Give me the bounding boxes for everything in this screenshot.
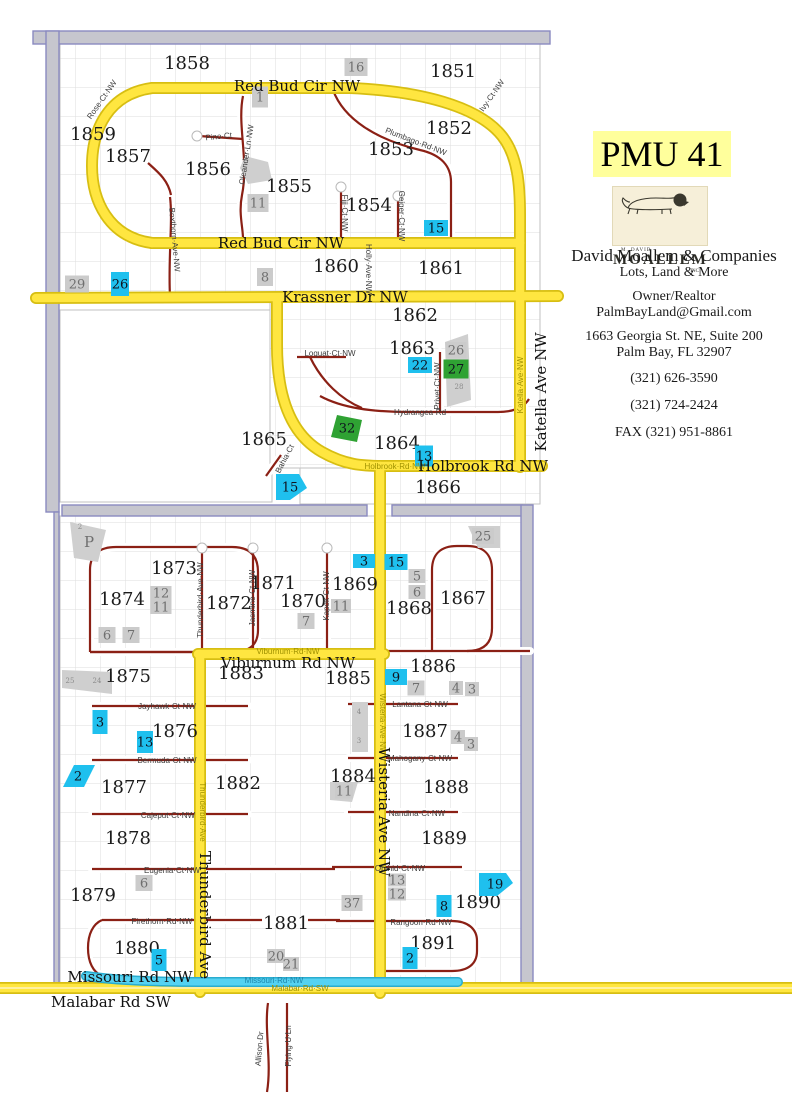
lot-marker-green: 27 — [444, 360, 469, 379]
block-label: 1857 — [105, 146, 151, 167]
block-label: 1858 — [164, 53, 210, 74]
street-name-label: Firethorn·Rd·NW — [132, 917, 193, 926]
marker-value: 11 — [250, 197, 267, 212]
phone-number-2: (321) 724-2424 — [544, 398, 792, 414]
marker-value: 8 — [261, 271, 269, 286]
marker-value: 6 — [140, 877, 148, 892]
lot-marker-cyan: 15 — [424, 220, 448, 237]
lot-marker-gray: 29 — [65, 276, 89, 293]
block-label: 1865 — [241, 429, 287, 450]
street-name-label: Geiger·Ct·NW — [397, 191, 406, 242]
block-label: 1854 — [346, 195, 392, 216]
lot-marker-gray: 3 — [464, 737, 478, 753]
road-name-label: Missouri Rd NW — [67, 968, 193, 986]
street-name-label: Malabar·Rd·SW — [271, 984, 329, 993]
address-line1: 1663 Georgia St. NE, Suite 200 — [544, 329, 792, 345]
marker-value: 25 — [475, 530, 492, 545]
lot-marker-gray: 7 — [123, 627, 140, 644]
lot-marker-cyan: 8 — [437, 895, 452, 917]
parcel-note-label: 4 — [357, 708, 362, 716]
block-label: 1862 — [392, 305, 438, 326]
marker-value: 13 — [137, 736, 154, 751]
lot-marker-gray: 7 — [298, 613, 315, 630]
lot-marker-gray: 4 — [449, 681, 463, 697]
block-label: 1868 — [386, 598, 432, 619]
lot-marker-gray: 12 — [388, 888, 406, 903]
company-logo: M. DAVID MOALLEM INC — [612, 186, 708, 246]
lot-marker-gray: 37 — [342, 895, 363, 912]
street-name-label: Rangoon·Rd·NW — [390, 918, 452, 927]
block-label: 1872 — [206, 593, 252, 614]
block-label: 1864 — [374, 433, 420, 454]
lot-marker-gray: 6 — [136, 875, 153, 892]
street-name-label: Thunderbird·Ave — [198, 782, 207, 842]
block-label: 1882 — [215, 773, 261, 794]
lion-icon — [614, 190, 706, 216]
lot-marker-gray: 6 — [99, 627, 116, 644]
marker-value: 6 — [103, 629, 111, 644]
marker-value: 7 — [412, 682, 420, 697]
marker-value: 15 — [282, 481, 299, 496]
marker-value: 8 — [440, 900, 448, 915]
marker-value: 4 — [452, 682, 460, 697]
lot-marker-gray: 25 — [472, 528, 494, 545]
lot-marker-gray: 8 — [257, 268, 273, 286]
marker-value: 15 — [388, 556, 405, 571]
block-label: 1866 — [415, 477, 461, 498]
lot-marker-gray: 4 — [451, 730, 465, 746]
block-label: 1889 — [421, 828, 467, 849]
marker-value: 37 — [344, 897, 361, 912]
marker-value: 19 — [487, 878, 504, 893]
road-name-label: Viburnum Rd NW — [220, 654, 356, 672]
block-label: 1874 — [99, 589, 145, 610]
lot-marker-gray: 6 — [409, 585, 426, 601]
road-name-label: Thunderbird Ave — [196, 851, 214, 979]
fax-number: FAX (321) 951-8861 — [544, 425, 792, 441]
block-label: 1860 — [313, 256, 359, 277]
lot-marker-cyan: 13 — [137, 731, 154, 753]
parcel-note-label: 3 — [357, 737, 361, 745]
block-label: 1869 — [332, 574, 378, 595]
address-line2: Palm Bay, FL 32907 — [544, 345, 792, 361]
pmu-title: PMU 41 — [593, 131, 731, 177]
street-name-label: Flying·U·Ln — [284, 1025, 293, 1066]
block-label: 1859 — [70, 124, 116, 145]
marker-value: 2 — [406, 952, 414, 967]
street-name-label: Privet·Ct·NW — [433, 362, 442, 410]
marker-value: 3 — [467, 738, 475, 753]
lot-marker-cyan: 22 — [408, 357, 432, 374]
block-label: 1855 — [266, 176, 312, 197]
street-name-label: Fiji·Ct·NW — [340, 195, 349, 232]
lot-marker-gray: 11 — [151, 600, 172, 616]
marker-value: 32 — [339, 422, 356, 437]
lot-marker-cyan: 9 — [385, 669, 407, 686]
street-name-label: Kapok·Ct·NW — [322, 571, 331, 621]
parcel-note-label: 2 — [78, 523, 82, 531]
street-name-label: Lantana·Ct·NW — [392, 700, 448, 709]
marker-value: 2 — [74, 770, 82, 785]
marker-value: 3 — [468, 683, 476, 698]
owner-realtor-label: Owner/Realtor — [544, 289, 792, 305]
lot-marker-gray: 11 — [331, 599, 351, 615]
marker-value: 4 — [454, 731, 462, 746]
block-label: 1851 — [430, 61, 476, 82]
block-label: 1879 — [70, 885, 116, 906]
marker-value: 11 — [153, 601, 170, 616]
lot-marker-gray: 3 — [465, 682, 479, 698]
lot-marker-gray: 12 — [151, 586, 172, 602]
marker-value: 26 — [448, 344, 465, 359]
lot-marker-gray: 5 — [409, 569, 426, 585]
street-name-label: Mahogany·Ct·NW — [388, 754, 452, 763]
street-name-label: Hydrangea·Rd — [394, 408, 446, 417]
street-name-label: Wisteria·Ave·NW — [378, 693, 387, 755]
street-name-label: Holbrook·Rd·NW — [365, 462, 426, 471]
lot-marker-gray: 16 — [345, 58, 368, 76]
block-label: 1878 — [105, 828, 151, 849]
road-name-label: Malabar Rd SW — [51, 993, 171, 1011]
block-label: 1867 — [440, 588, 486, 609]
company-tagline: Lots, Land & More — [544, 265, 792, 281]
street-name-label: Nandina·Ct·NW — [389, 809, 446, 818]
road-name-label: Red Bud Cir NW — [218, 234, 345, 252]
marker-value: 9 — [392, 671, 400, 686]
marker-value: 27 — [448, 363, 465, 378]
marker-value: 5 — [413, 570, 421, 585]
block-label: 1888 — [423, 777, 469, 798]
block-label: 1856 — [185, 159, 231, 180]
parcel-note-label: 28 — [455, 383, 464, 391]
street-name-label: Thunderbird·Ave·NW — [196, 562, 205, 638]
contact-email[interactable]: PalmBayLand@Gmail.com — [544, 305, 792, 321]
marker-value: 5 — [155, 954, 163, 969]
area-label-p: P — [84, 533, 94, 551]
phone-number-1: (321) 626-3590 — [544, 371, 792, 387]
marker-value: 22 — [412, 359, 429, 374]
lot-marker-gray: 26 — [446, 342, 467, 359]
street-name-label: Loquat·Ct·NW — [304, 349, 356, 358]
street-name-label: Jayhawk·Ct·NW — [138, 702, 196, 711]
street-name-label: Katella·Ave·NW — [516, 356, 525, 413]
street-name-label: Jasmine·Ct·NW — [248, 569, 257, 626]
marker-value: 11 — [333, 600, 350, 615]
street-name-label: Holly·Ave·NW — [364, 244, 373, 295]
lot-marker-cyan: 2 — [403, 947, 418, 969]
block-label: 1887 — [402, 721, 448, 742]
block-label: 1870 — [280, 591, 326, 612]
marker-value: 3 — [96, 716, 104, 731]
marker-value: 12 — [153, 587, 170, 602]
lot-marker-cyan: 26 — [111, 272, 129, 296]
marker-value: 7 — [302, 615, 310, 630]
pmu-map-page: 1858185118591857185618551853185218541860… — [0, 0, 792, 1109]
block-label: 1861 — [418, 258, 464, 279]
marker-value: 29 — [69, 278, 86, 293]
road-name-label: Holbrook Rd NW — [418, 457, 548, 475]
street-name-label: Cajeput·Ct·NW — [141, 811, 196, 820]
marker-value: 21 — [283, 958, 300, 973]
parcel-note-label: 24 — [93, 677, 102, 685]
lot-marker-cyan: 15 — [385, 554, 408, 571]
marker-value: 15 — [428, 222, 445, 237]
marker-value: 11 — [336, 785, 353, 800]
lot-marker-cyan: 3 — [353, 554, 375, 570]
street-name-label: Eugenia·Ct·NW — [144, 866, 200, 875]
block-label: 1886 — [410, 656, 456, 677]
marker-value: 26 — [112, 278, 129, 293]
lot-marker-gray: 11 — [248, 194, 269, 212]
marker-value: 3 — [360, 555, 368, 570]
marker-value: 7 — [127, 629, 135, 644]
road-name-label: Krassner Dr NW — [282, 288, 408, 306]
block-label: 1876 — [152, 721, 198, 742]
block-label: 1875 — [105, 666, 151, 687]
marker-value: 6 — [413, 586, 421, 601]
lot-marker-gray: 21 — [283, 957, 300, 973]
marker-value: 16 — [348, 61, 365, 76]
street-name-label: Allison·Dr — [254, 1031, 266, 1067]
block-label: 1881 — [263, 913, 309, 934]
road-name-label: Red Bud Cir NW — [234, 77, 361, 95]
lot-marker-gray: 11 — [335, 784, 353, 800]
lot-marker-gray: 7 — [408, 681, 425, 697]
road-name-label: Wisteria Ave NW — [375, 747, 393, 877]
marker-value: 12 — [389, 888, 406, 903]
block-label: 1873 — [151, 558, 197, 579]
block-label: 1852 — [426, 118, 472, 139]
block-label: 1877 — [101, 777, 147, 798]
company-name: David Moallem & Companies — [544, 246, 792, 266]
block-label: 1863 — [389, 338, 435, 359]
street-name-label: Bermuda·Ct·NW — [137, 756, 197, 765]
parcel-note-label: 25 — [66, 677, 75, 685]
lot-marker-cyan: 3 — [93, 710, 108, 734]
